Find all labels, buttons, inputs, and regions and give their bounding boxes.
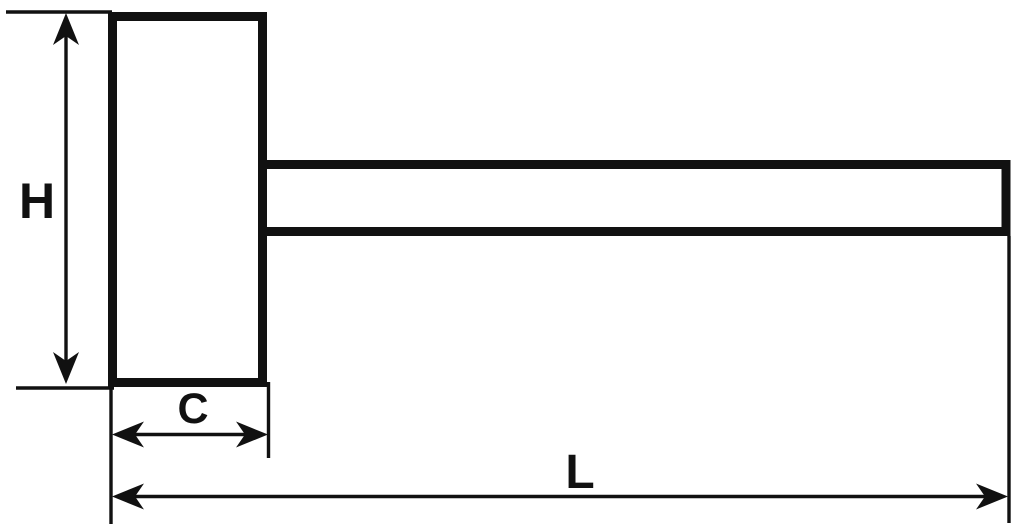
dimension-label-head-width: C — [177, 385, 208, 433]
dimension-height: H — [19, 13, 79, 384]
dimension-overall-length: L — [112, 446, 1008, 510]
mallet-head-outline — [113, 17, 263, 383]
dimension-head-width: C — [112, 385, 268, 448]
mallet-dimension-diagram: H C L — [0, 0, 1024, 529]
dimension-label-height: H — [19, 173, 55, 229]
technical-drawing-canvas: H C L — [0, 0, 1024, 529]
mallet-handle-outline — [262, 165, 1006, 232]
dimension-label-overall-length: L — [565, 446, 594, 499]
